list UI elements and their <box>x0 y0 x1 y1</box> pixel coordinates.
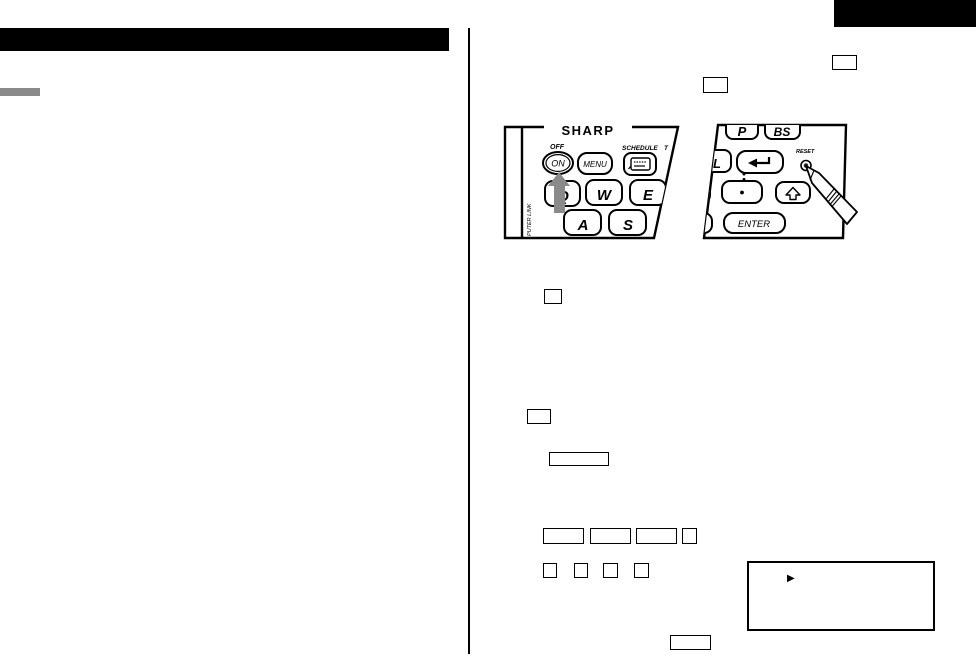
key-symbol-box <box>832 55 857 70</box>
keyboard-illustration-on-key: Q W E A S SHARP OFF ON MENU SCHEDULE T <box>493 112 685 246</box>
key-e-label: E <box>643 187 654 204</box>
key-symbol-box <box>636 528 677 544</box>
key-symbol-box <box>544 289 562 304</box>
key-symbol-box <box>549 452 609 466</box>
key-p-label: P <box>738 124 747 139</box>
subsection-mark <box>0 88 40 96</box>
page-corner-tab <box>834 0 976 27</box>
computer-link-side-text: PUTER LINK <box>527 203 533 236</box>
key-symbol-box <box>682 528 697 544</box>
key-symbol-box <box>543 528 584 544</box>
key-partial-left-1 <box>693 181 710 203</box>
schedule-label: SCHEDULE <box>622 145 658 152</box>
display-callout-box: ▶ <box>747 561 935 631</box>
manual-page: Q W E A S SHARP OFF ON MENU SCHEDULE T <box>0 0 976 656</box>
keyboard-icon <box>629 158 651 170</box>
keyboard-illustration-reset: P BS L ENTER RESET <box>693 103 865 247</box>
menu-key-label: MENU <box>583 160 607 169</box>
key-l-label: L <box>713 156 721 171</box>
key-partial-left-2 <box>693 213 712 233</box>
key-w-label: W <box>597 187 613 204</box>
key-a-label: A <box>577 217 589 234</box>
key-enter-label: ENTER <box>738 219 770 230</box>
key-symbol-box <box>670 635 711 650</box>
reset-label: RESET <box>796 149 815 155</box>
key-symbol-box <box>634 563 649 578</box>
key-s-label: S <box>623 217 633 234</box>
key-bs-label: BS <box>774 125 791 139</box>
key-symbol-box <box>590 528 631 544</box>
key-symbol-box <box>703 77 728 93</box>
section-title-bar <box>0 28 449 51</box>
off-label: OFF <box>550 144 565 151</box>
key-symbol-box <box>574 563 588 578</box>
key-symbol-box <box>543 563 557 578</box>
on-key-label: ON <box>551 159 565 169</box>
column-divider <box>468 28 470 654</box>
period-dot <box>740 191 744 195</box>
sharp-logo: SHARP <box>561 123 614 138</box>
cursor-triangle-icon: ▶ <box>787 574 795 584</box>
key-symbol-box <box>527 409 551 424</box>
key-symbol-box <box>603 563 618 578</box>
